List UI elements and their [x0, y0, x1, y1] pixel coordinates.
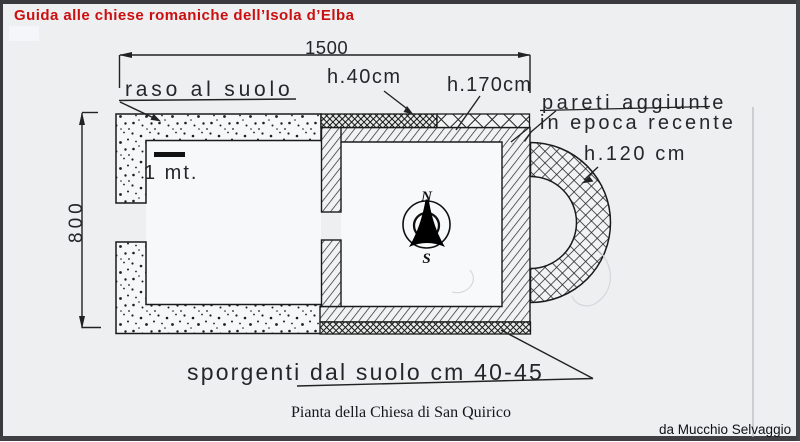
svg-text:1 mt.: 1 mt. [144, 162, 198, 184]
svg-text:S: S [422, 251, 430, 267]
svg-text:pareti aggiunte: pareti aggiunte [542, 92, 727, 114]
svg-text:raso al suolo: raso al suolo [125, 78, 293, 101]
svg-text:1500: 1500 [305, 37, 348, 58]
svg-text:in epoca recente: in epoca recente [540, 112, 736, 134]
svg-text:h.40cm: h.40cm [327, 66, 402, 88]
svg-text:800: 800 [66, 199, 87, 243]
svg-text:N: N [420, 189, 433, 205]
svg-text:h.170cm: h.170cm [447, 74, 532, 96]
svg-text:h.120 cm: h.120 cm [584, 143, 687, 165]
